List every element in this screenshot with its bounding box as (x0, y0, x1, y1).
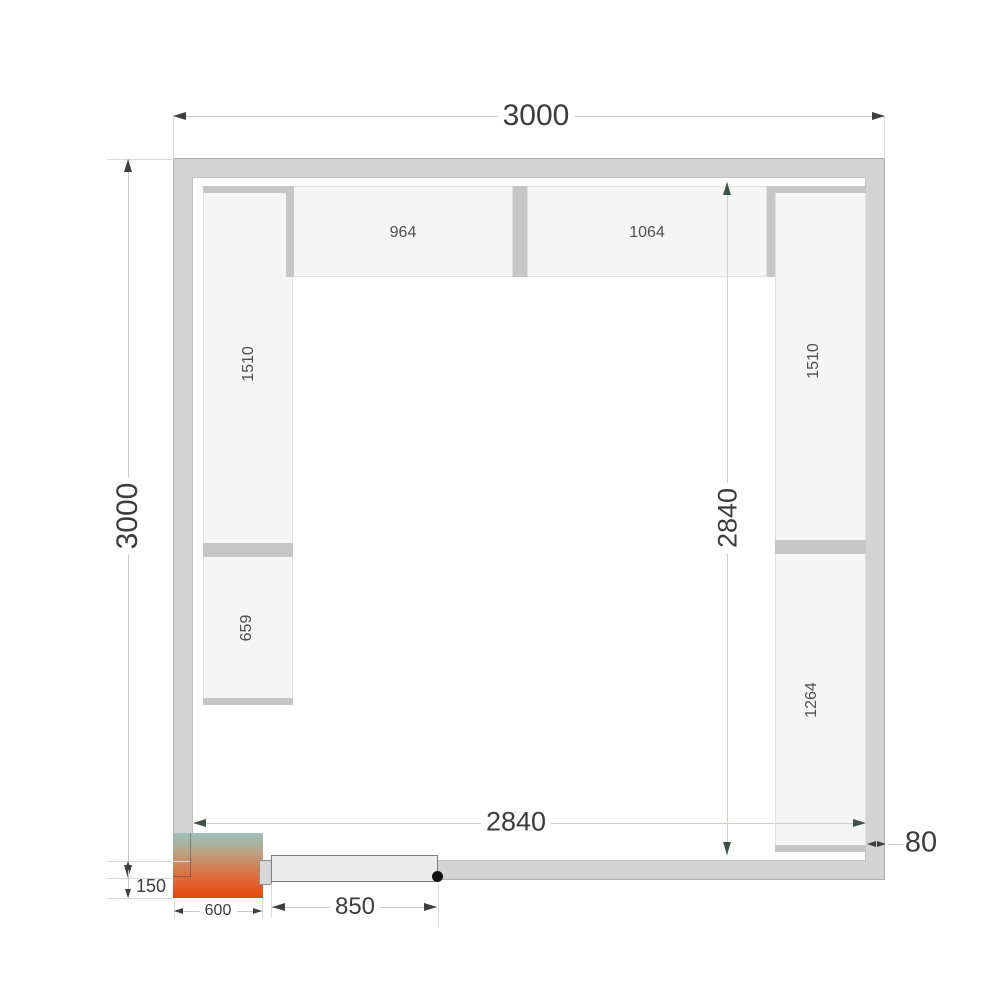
wall-corner-line-horizontal (173, 876, 191, 877)
dim-unit-arrow-right (253, 908, 262, 914)
shelf-right-bottom-bar (775, 845, 866, 852)
dim-door-arrow-right (424, 903, 437, 911)
dim-depth-ext-top (107, 159, 172, 160)
shelf-top-divider (513, 186, 527, 277)
dim-inner-width-label: 2840 (481, 809, 551, 836)
shelf-right-upper-length-label: 1510 (806, 343, 822, 379)
dim-unit-ext-right (262, 899, 263, 918)
shelf-top-left-length-label: 964 (390, 225, 417, 241)
dim-unit-width-label: 600 (200, 903, 237, 919)
shelf-right-column (775, 186, 866, 852)
shelf-right-divider (775, 540, 866, 554)
floorplan-diagram: 964 1064 1510 659 1510 1264 3000 3000 28… (0, 0, 1000, 1000)
cooling-unit (173, 833, 263, 898)
shelf-left-upper-length-label: 1510 (241, 346, 257, 382)
dim-inner-width-arrow-left (193, 819, 206, 827)
dim-protrusion-ext-bottom (107, 898, 174, 899)
dim-inner-depth-arrow-up (723, 182, 731, 195)
dim-depth-arrow-up (124, 159, 132, 172)
dim-protrusion-ext-top (107, 861, 190, 862)
dim-inner-width-arrow-right (853, 819, 866, 827)
dim-protrusion-label: 150 (131, 877, 171, 895)
shelf-left-top-bar (203, 186, 293, 193)
dim-wall-thickness-label: 80 (900, 829, 942, 858)
dim-door-ext-right (438, 884, 439, 927)
door-leaf (271, 855, 438, 882)
dim-protrusion-arrow-up (125, 861, 131, 870)
shelf-right-top-bar (775, 186, 866, 193)
dim-door-ext-left (271, 884, 272, 917)
dim-wall-arrow-left (867, 841, 876, 847)
door-hinge-dot (432, 871, 443, 882)
shelf-left-lower-length-label: 659 (239, 615, 255, 642)
dim-inner-depth-arrow-down (723, 842, 731, 855)
dim-door-width-label: 850 (330, 895, 380, 919)
dim-width-ext-right (884, 117, 885, 157)
dim-wall-arrow-right (877, 841, 886, 847)
shelf-left-bottom-bar (203, 698, 293, 705)
dim-overall-depth-label: 3000 (113, 478, 143, 555)
dim-width-arrow-left (173, 112, 186, 120)
dim-width-ext-left (173, 117, 174, 157)
dim-door-arrow-left (272, 903, 285, 911)
shelf-right-lower-length-label: 1264 (804, 682, 820, 718)
dim-width-arrow-right (872, 112, 885, 120)
shelf-left-divider (203, 543, 293, 557)
shelf-right-junction-bar (767, 186, 775, 277)
wall-corner-line-vertical (190, 833, 191, 877)
shelf-left-junction-bar (286, 186, 294, 277)
dim-overall-width-label: 3000 (498, 101, 575, 131)
room-interior (192, 177, 866, 861)
dim-unit-arrow-left (174, 908, 183, 914)
dim-inner-depth-label: 2840 (715, 483, 742, 553)
shelf-top-right-length-label: 1064 (629, 225, 665, 241)
